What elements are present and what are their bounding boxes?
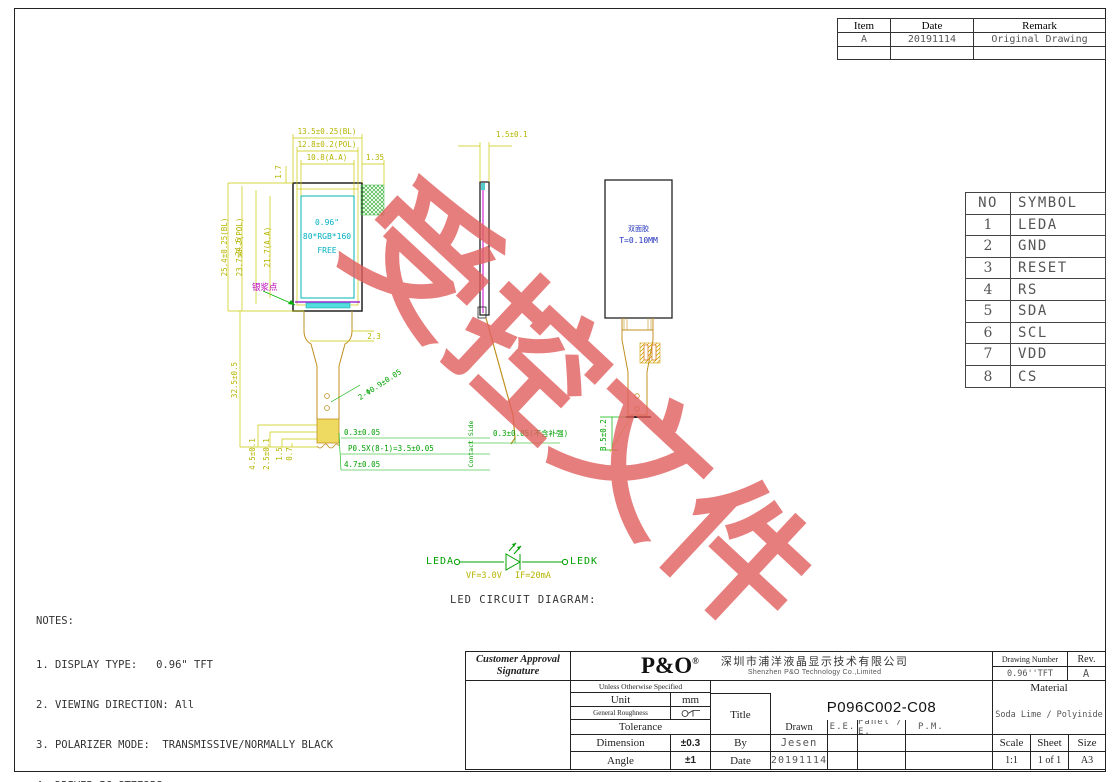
pin-symbol: GND [1011, 236, 1105, 258]
company-name-en: Shenzhen P&O Technology Co.,Limited [721, 669, 909, 676]
unless-otherwise-cell: Unless Otherwise Specified [571, 681, 711, 693]
ledk-label: LEDK [570, 556, 598, 567]
front-connector-wave [317, 444, 339, 448]
dim-top-gap: 1.7 [275, 163, 283, 181]
notes-title: NOTES: [36, 615, 333, 628]
side-step [478, 307, 486, 318]
drawing-number-value: 0.96''TFT [993, 667, 1068, 681]
pin-symbol: LEDA [1011, 215, 1105, 237]
front-view [228, 134, 490, 470]
dim-aa-height: 21.7(A.A) [264, 217, 272, 277]
scale-label: Scale [993, 735, 1031, 752]
pin-no: 7 [966, 344, 1011, 366]
note-item: 3. POLARIZER MODE: TRANSMISSIVE/NORMALLY… [36, 739, 333, 752]
size-value: A3 [1069, 752, 1105, 769]
front-hole-1 [325, 394, 330, 399]
pin-symbol: SCL [1011, 323, 1105, 345]
drawn-value: Jesen [771, 735, 828, 752]
customer-approval-line2: Signature [476, 666, 560, 678]
date-value: 20191114 [771, 752, 828, 769]
ee-label: E.E. [828, 720, 858, 735]
led-circuit [454, 543, 567, 570]
back-tape-note: 双面胶 T=0.10MM [605, 224, 672, 246]
signature-space [466, 681, 571, 769]
front-bonding-bar [306, 303, 350, 308]
pm-value-empty [906, 735, 993, 752]
size-label: Size [1069, 735, 1105, 752]
screen-resolution: 80*RGB*160 [296, 230, 358, 244]
side-cyan-mark [481, 183, 485, 190]
dim-connector-width: 4.7±0.05 [344, 461, 380, 469]
dim-s3: 1.5 [276, 440, 284, 468]
dim-total-height: 32.5±0.5 [231, 350, 239, 410]
dim-bl-width: 13.5±0.25(BL) [283, 128, 371, 136]
empty-cell [858, 752, 906, 769]
dim-back: 3.5±0.2 [600, 410, 608, 460]
side-fpc-line [486, 318, 515, 444]
back-hole-1 [635, 394, 640, 399]
leda-terminal [454, 559, 459, 564]
rev-col-date: Date [891, 19, 974, 33]
unit-label: Unit [571, 693, 671, 707]
roughness-label: General Roughness [571, 707, 671, 720]
pin-no: 6 [966, 323, 1011, 345]
note-item: 2. VIEWING DIRECTION: All [36, 699, 333, 712]
panel-label: Panel / E. [858, 720, 906, 735]
rev-col-item: Item [838, 19, 891, 33]
customer-approval-line1: Customer Approval [476, 654, 560, 666]
dim-hatch-width: 1.35 [355, 154, 395, 162]
back-led-pad-2 [652, 345, 656, 360]
back-fpc-outline [622, 318, 653, 415]
pin-no: 4 [966, 279, 1011, 301]
tape-line2: T=0.10MM [605, 235, 672, 246]
rev-empty-cell [891, 47, 974, 59]
note-item: 1. DISPLAY TYPE: 0.96" TFT [36, 659, 333, 672]
tape-line1: 双面胶 [605, 224, 672, 235]
dim-thickness: 1.5±0.1 [496, 131, 528, 139]
back-stiffener-hatch [640, 343, 660, 363]
pin-symbol: RESET [1011, 258, 1105, 280]
pin-no: 2 [966, 236, 1011, 258]
date-label: Date [711, 752, 771, 769]
empty-cell [828, 752, 858, 769]
front-fpc-connector [317, 419, 339, 443]
rev-empty-cell [974, 47, 1105, 59]
dimension-label: Dimension [571, 735, 671, 752]
rev-item: A [838, 33, 891, 47]
dim-pol-width: 12.8±0.2(POL) [283, 141, 371, 149]
company-name-cn: 深圳市浦洋液晶显示技术有限公司 [721, 656, 909, 669]
unit-value: mm [671, 693, 711, 707]
title-label-cell: Title [711, 693, 771, 735]
led-if: IF=20mA [515, 572, 551, 580]
back-view [600, 180, 672, 452]
pin-no: 5 [966, 301, 1011, 323]
screen-free: FREE [296, 244, 358, 258]
dimension-value: ±0.3 [671, 735, 711, 752]
back-led-pad-1 [644, 345, 648, 360]
pin-table: NO SYMBOL 1 LEDA 2 GND 3 RESET 4 RS 5 SD… [965, 192, 1106, 388]
dim-fpc-thickness: 0.3±0.05(不含补强) [493, 430, 568, 438]
notes-block: NOTES: 1. DISPLAY TYPE: 0.96" TFT 2. VIE… [36, 588, 333, 782]
angle-value: ±1 [671, 752, 711, 769]
title-block: Customer Approval Signature P&O® 深圳市浦洋液晶… [465, 651, 1106, 770]
ee-value-empty [828, 735, 858, 752]
pin-symbol: CS [1011, 366, 1105, 388]
dim-bl-height: 25.4±0.25(BL) [221, 207, 229, 287]
customer-approval-cell: Customer Approval Signature [466, 652, 571, 681]
rev-col-remark: Remark [974, 19, 1105, 33]
pin-no: 8 [966, 366, 1011, 388]
back-outline [605, 180, 672, 318]
rev-label: Rev. [1068, 652, 1105, 667]
dim-pitch: P0.5X(8-1)=3.5±0.05 [348, 445, 434, 453]
tolerance-label: Tolerance [571, 720, 711, 735]
revision-table: Item Date Remark A 20191114 Original Dra… [837, 18, 1106, 60]
empty-cell [906, 752, 993, 769]
pin-no: 3 [966, 258, 1011, 280]
rev-date: 20191114 [891, 33, 974, 47]
ledk-terminal [562, 559, 567, 564]
pin-symbol: SDA [1011, 301, 1105, 323]
angle-label: Angle [571, 752, 671, 769]
led-vf: VF=3.0V [466, 572, 502, 580]
rev-remark: Original Drawing [974, 33, 1105, 47]
company-logo: P&O® [641, 653, 699, 679]
pin-no: 1 [966, 215, 1011, 237]
screen-size: 0.96" [296, 216, 358, 230]
silver-dot-label: 银浆点 [252, 281, 278, 293]
pin-symbol: VDD [1011, 344, 1105, 366]
contact-side-label: Contact Side [467, 414, 475, 474]
material-value: Soda Lime / Polyinide [993, 695, 1105, 735]
material-label: Material [993, 681, 1105, 695]
dim-fpc-23: 2.3 [362, 333, 386, 341]
by-label: By [711, 735, 771, 752]
dim-s4: 0.7 [286, 442, 294, 466]
led-diode-symbol [506, 554, 520, 570]
front-hatch-block [361, 185, 384, 215]
side-view [458, 142, 560, 444]
rev-empty-cell [838, 47, 891, 59]
pin-symbol: RS [1011, 279, 1105, 301]
side-profile-outline [480, 182, 489, 315]
leda-label: LEDA [426, 556, 454, 567]
sheet-label: Sheet [1031, 735, 1069, 752]
company-header: P&O® 深圳市浦洋液晶显示技术有限公司 Shenzhen P&O Techno… [571, 652, 993, 681]
pm-label: P.M. [906, 720, 993, 735]
dim-s2: 2.5±0.1 [263, 432, 271, 476]
rev-value: A [1068, 667, 1105, 681]
pin-col-symbol: SYMBOL [1011, 193, 1105, 215]
front-hole-2 [325, 406, 330, 411]
panel-value-empty [858, 735, 906, 752]
roughness-symbol-cell [671, 707, 711, 720]
drawing-number-label: Drawing Number [993, 652, 1068, 667]
dim-s1: 4.5±0.1 [249, 432, 257, 476]
screen-spec-text: 0.96" 80*RGB*160 FREE [296, 216, 358, 258]
dim-pol-height: 23.7±0.2(POL) [236, 206, 244, 288]
scale-value: 1:1 [993, 752, 1031, 769]
back-hole-2 [635, 407, 640, 412]
sheet-value: 1 of 1 [1031, 752, 1069, 769]
dim-pad-width: 0.3±0.05 [344, 429, 380, 437]
roughness-symbol-icon [679, 708, 703, 719]
pin-col-no: NO [966, 193, 1011, 215]
led-circuit-caption: LED CIRCUIT DIAGRAM: [450, 594, 596, 606]
engineering-drawing-sheet: Item Date Remark A 20191114 Original Dra… [0, 0, 1120, 782]
registered-mark: ® [692, 656, 699, 666]
drawn-label: Drawn [771, 720, 828, 735]
